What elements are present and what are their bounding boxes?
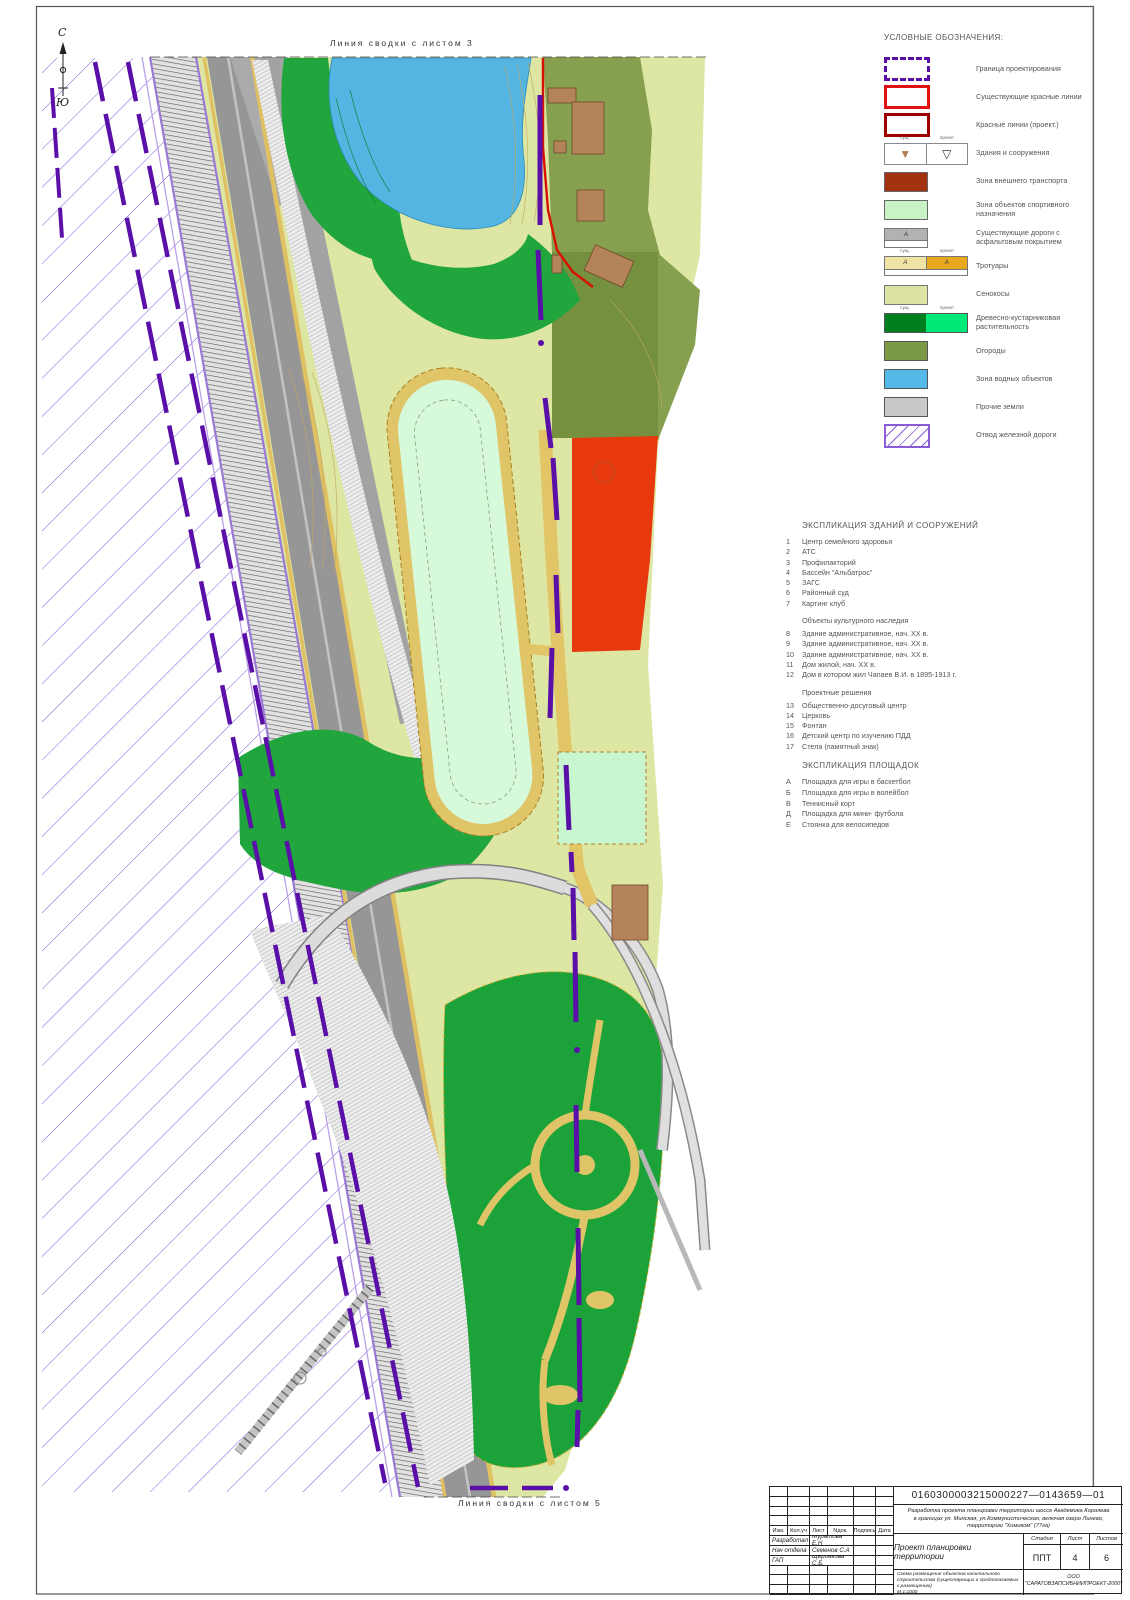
other-symbol [884, 397, 928, 417]
boundary-swatch [884, 57, 976, 81]
title-block: Изм.Кол.учЛистNдок.ПодписьДатаРазработал… [769, 1486, 1122, 1594]
compass-north-label: С [58, 26, 66, 39]
item-label: Здание административное, нач. XX в. [802, 629, 928, 639]
explication-group-heading: Объекты культурного наследия [786, 616, 1068, 625]
legend-item-label: Красные линии (проект.) [976, 121, 1094, 130]
explication-areas-title: ЭКСПЛИКАЦИЯ ПЛОЩАДОК [786, 761, 1068, 770]
explication-item: 15Фонтан [786, 721, 1068, 731]
redexist-swatch [884, 85, 976, 109]
swatch-column-headers: сущ.проект [884, 248, 968, 253]
explication-item: 13Общественно-досуговый центр [786, 701, 1068, 711]
roads-swatch: А [884, 228, 976, 248]
explication-item: 17Стела (памятный знак) [786, 742, 1068, 752]
trees-swatch: сущ.проект [884, 313, 976, 333]
stamp-cell [788, 1487, 810, 1497]
item-label: Дом жилой, нач. XX в. [802, 660, 876, 670]
stamp-cell: Лист [810, 1526, 828, 1536]
area-letter: Е [786, 820, 802, 831]
item-label: Здание административное, нач. XX в. [802, 639, 928, 649]
explication: ЭКСПЛИКАЦИЯ ЗДАНИЙ И СООРУЖЕНИЙ 1Центр с… [786, 521, 1068, 831]
stamp-cell [810, 1497, 828, 1507]
scale-note: М 1:1000 [897, 1590, 917, 1595]
item-label: Здание административное, нач. XX в. [802, 650, 928, 660]
rail-symbol [884, 424, 930, 448]
sport-playground-a [558, 752, 646, 844]
legend-item-boundary: Граница проектирования [884, 55, 1094, 83]
transport-swatch [884, 172, 976, 192]
stamp-cell [854, 1585, 876, 1595]
roads-symbol: А [884, 228, 928, 248]
area-item: АПлощадка для игры в баскетбол [786, 777, 1068, 788]
sheets-total: 6 [1090, 1545, 1123, 1570]
item-number: 17 [786, 742, 802, 752]
legend-item-trees: сущ.проектДревесно-кустарниковая растите… [884, 309, 1094, 337]
explication-item: 14Церковь [786, 711, 1068, 721]
stamp-cell [876, 1507, 894, 1517]
item-label: Церковь [802, 711, 830, 721]
explication-buildings-list: 1Центр семейного здоровья2АТС3Профилакто… [786, 537, 1068, 752]
swatch-column-headers: сущ.проект [884, 305, 968, 310]
gardens-symbol [884, 341, 928, 361]
item-number: 16 [786, 731, 802, 741]
stamp-cell [876, 1566, 894, 1576]
legend-item-label: Прочие земли [976, 403, 1094, 412]
legend-item-redexist: Существующие красные линии [884, 83, 1094, 111]
water-swatch [884, 369, 976, 389]
area-label: Площадка для мини- футбола [802, 809, 903, 820]
project-title: Проект планировки территории [894, 1534, 1024, 1569]
stamp-cell [876, 1487, 894, 1497]
area-item: БПлощадка для игры в волейбол [786, 788, 1068, 799]
area-letter: А [786, 777, 802, 788]
item-label: Районный суд [802, 588, 849, 598]
item-label: Общественно-досуговый центр [802, 701, 907, 711]
item-number: 14 [786, 711, 802, 721]
item-number: 13 [786, 701, 802, 711]
stamp-cell [828, 1497, 854, 1507]
stamp-cell [788, 1507, 810, 1517]
swatch-column-headers: сущ.проект [884, 135, 968, 140]
match-line-top-label: Линия сводки с листом 3 [330, 38, 474, 48]
area-item: ДПлощадка для мини- футбола [786, 809, 1068, 820]
stage-value: ППТ [1024, 1545, 1061, 1570]
signature-cell: Разработал [770, 1536, 810, 1546]
legend-item-label: Огороды [976, 347, 1094, 356]
water-symbol [884, 369, 928, 389]
company-line-2: "САРАТОВЗАПСИБНИИПРОЕКТ-2000" [1025, 1581, 1122, 1587]
explication-item: 9Здание административное, нач. XX в. [786, 639, 1068, 649]
explication-item: 5ЗАГС [786, 578, 1068, 588]
title-block-main: 0160300003215000227—0143659—01 Разработк… [894, 1487, 1123, 1593]
legend-item-label: Тротуары [976, 262, 1094, 271]
walk-symbol: АА [884, 256, 968, 276]
sport-symbol [884, 200, 928, 220]
legend-list: Граница проектированияСуществующие красн… [884, 55, 1094, 450]
area-label: Стоянка для велосипедов [802, 820, 889, 831]
stamp-cell [770, 1516, 788, 1526]
stamp-cell [788, 1575, 810, 1585]
company-line-1: ООО [1067, 1574, 1080, 1580]
gardens-swatch [884, 341, 976, 361]
stamp-cell [854, 1516, 876, 1526]
stamp-cell [810, 1507, 828, 1517]
legend-item-label: Существующие дороги с асфальтовым покрыт… [976, 229, 1094, 247]
redexist-symbol [884, 85, 930, 109]
explication-areas-list: АПлощадка для игры в баскетболБПлощадка … [786, 777, 1068, 831]
stamp-cell [770, 1566, 788, 1576]
legend-item-walk: сущ.проектААТротуары [884, 252, 1094, 280]
legend-item-sport: Зона объектов спортивного назначения [884, 196, 1094, 224]
explication-item: 16Детский центр по изучению ПДД [786, 731, 1068, 741]
item-label: Фонтан [802, 721, 827, 731]
stamp-cell [770, 1497, 788, 1507]
item-label: ЗАГС [802, 578, 820, 588]
stamp-cell [876, 1575, 894, 1585]
explication-item: 10Здание административное, нач. XX в. [786, 650, 1068, 660]
explication-item: 11Дом жилой, нач. XX в. [786, 660, 1068, 670]
legend-item-label: Существующие красные линии [976, 93, 1094, 102]
legend-item-label: Зона внешнего транспорта [976, 177, 1094, 186]
stamp-cell: Дата [876, 1526, 894, 1536]
bld-swatch: сущ.проект▼▽ [884, 143, 976, 165]
stamp-cell [828, 1516, 854, 1526]
signature-cell: Семенов С.А [810, 1546, 854, 1556]
stamp-cell [876, 1585, 894, 1595]
description-line-2: в границах ул. Минская, ул.Коммунистичес… [914, 1516, 1104, 1522]
match-line-bottom-label: Линия сводки с листом 5 [458, 1498, 602, 1508]
area-label: Теннисный корт [802, 799, 855, 810]
area-letter: Д [786, 809, 802, 820]
trees-symbol [884, 313, 968, 333]
legend-item-label: Древесно-кустарниковая растительность [976, 314, 1094, 332]
item-number: 15 [786, 721, 802, 731]
legend-item-label: Здания и сооружения [976, 149, 1094, 158]
stamp-cell [828, 1585, 854, 1595]
compass-south-label: Ю [56, 96, 69, 109]
signature-cell: Щербакова С.Б. [810, 1556, 854, 1566]
item-label: Детский центр по изучению ПДД [802, 731, 911, 741]
scheme-note-text: Схема размещения объектов капитального с… [897, 1572, 1018, 1589]
stamp-cell: Изм. [770, 1526, 788, 1536]
legend-item-transport: Зона внешнего транспорта [884, 168, 1094, 196]
item-label: Профилакторий [802, 558, 856, 568]
item-label: Стела (памятный знак) [802, 742, 879, 752]
title-block-signatures: Изм.Кол.учЛистNдок.ПодписьДатаРазработал… [770, 1487, 894, 1593]
item-number: 7 [786, 599, 802, 609]
stamp-cell [854, 1566, 876, 1576]
item-number: 4 [786, 568, 802, 578]
bld-symbol: ▼▽ [884, 143, 968, 165]
document-number: 0160300003215000227—0143659—01 [894, 1487, 1123, 1505]
stamp-cell [788, 1497, 810, 1507]
plan-sheet: Линия сводки с листом 3 Линия сводки с л… [0, 0, 1130, 1600]
sheets-label: Листов [1090, 1534, 1123, 1544]
item-number: 10 [786, 650, 802, 660]
stamp-cell [810, 1516, 828, 1526]
area-label: Площадка для игры в волейбол [802, 788, 909, 799]
area-letter: В [786, 799, 802, 810]
stamp-cell [828, 1566, 854, 1576]
item-number: 2 [786, 547, 802, 557]
stamp-cell: Подпись [854, 1526, 876, 1536]
description-line-1: Разработка проекта планировки территории… [908, 1508, 1110, 1514]
project-description: Разработка проекта планировки территории… [894, 1505, 1123, 1534]
stamp-cell [828, 1507, 854, 1517]
legend-item-label: Граница проектирования [976, 65, 1094, 74]
rail-swatch [884, 424, 976, 448]
explication-buildings-title: ЭКСПЛИКАЦИЯ ЗДАНИЙ И СООРУЖЕНИЙ [786, 521, 1068, 530]
item-number: 3 [786, 558, 802, 568]
item-label: Центр семейного здоровья [802, 537, 892, 547]
hay-symbol [884, 285, 928, 305]
stamp-cell [876, 1516, 894, 1526]
stamp-cell [854, 1556, 876, 1566]
explication-item: 1Центр семейного здоровья [786, 537, 1068, 547]
sheet-label: Лист [1061, 1534, 1090, 1544]
legend: УСЛОВНЫЕ ОБОЗНАЧЕНИЯ: Граница проектиров… [884, 33, 1094, 450]
legend-item-other: Прочие земли [884, 393, 1094, 421]
stamp-cell [854, 1546, 876, 1556]
stamp-cell [810, 1566, 828, 1576]
item-number: 12 [786, 670, 802, 680]
signature-cell: Нач отдела [770, 1546, 810, 1556]
legend-item-rail: Отвод железной дороги [884, 421, 1094, 449]
item-label: Картинг клуб [802, 599, 845, 609]
item-number: 8 [786, 629, 802, 639]
signature-cell: ГАП [770, 1556, 810, 1566]
item-number: 9 [786, 639, 802, 649]
stamp-cell [828, 1575, 854, 1585]
stamp-cell [876, 1546, 894, 1556]
stamp-cell [770, 1585, 788, 1595]
stamp-cell [788, 1585, 810, 1595]
stamp-cell [770, 1487, 788, 1497]
explication-item: 4Бассейн "Альбатрос" [786, 568, 1068, 578]
stamp-cell [854, 1507, 876, 1517]
stamp-cell: Кол.уч [788, 1526, 810, 1536]
boundary-symbol [884, 57, 930, 81]
stage-label: Стадия [1024, 1534, 1061, 1544]
stamp-cell [810, 1487, 828, 1497]
legend-item-gardens: Огороды [884, 337, 1094, 365]
item-label: Бассейн "Альбатрос" [802, 568, 872, 578]
explication-item: 6Районный суд [786, 588, 1068, 598]
legend-item-label: Сенокосы [976, 290, 1094, 299]
area-item: ЕСтоянка для велосипедов [786, 820, 1068, 831]
explication-item: 3Профилакторий [786, 558, 1068, 568]
sheet-number: 4 [1061, 1545, 1090, 1570]
stamp-cell [810, 1585, 828, 1595]
item-number: 11 [786, 660, 802, 670]
legend-item-bld: сущ.проект▼▽Здания и сооружения [884, 140, 1094, 168]
explication-item: 12Дом в котором жил Чапаев В.И. в 1895-1… [786, 670, 1068, 680]
hay-swatch [884, 285, 976, 305]
area-item: ВТеннисный корт [786, 799, 1068, 810]
stamp-cell [876, 1556, 894, 1566]
stamp-cell [788, 1566, 810, 1576]
stage-grid: Стадия Лист Листов ППТ 4 6 [1024, 1534, 1123, 1569]
signature-cell: Муратова Е.Н [810, 1536, 854, 1546]
stamp-cell [770, 1575, 788, 1585]
stamp-cell: Nдок. [828, 1526, 854, 1536]
legend-item-water: Зона водных объектов [884, 365, 1094, 393]
stamp-cell [788, 1516, 810, 1526]
description-line-3: территорию "Химиком" (77га) [967, 1523, 1050, 1529]
legend-title: УСЛОВНЫЕ ОБОЗНАЧЕНИЯ: [884, 33, 1094, 42]
stamp-cell [810, 1575, 828, 1585]
explication-group-heading: Проектные решения [786, 688, 1068, 697]
item-number: 1 [786, 537, 802, 547]
area-letter: Б [786, 788, 802, 799]
area-label: Площадка для игры в баскетбол [802, 777, 911, 788]
stamp-cell [876, 1497, 894, 1507]
stamp-cell [876, 1536, 894, 1546]
item-label: АТС [802, 547, 816, 557]
scheme-note: Схема размещения объектов капитального с… [894, 1570, 1024, 1595]
stamp-cell [854, 1575, 876, 1585]
walk-swatch: сущ.проектАА [884, 256, 976, 276]
item-number: 5 [786, 578, 802, 588]
sport-swatch [884, 200, 976, 220]
legend-item-label: Зона водных объектов [976, 375, 1094, 384]
stamp-cell [770, 1507, 788, 1517]
legend-item-label: Отвод железной дороги [976, 431, 1094, 440]
stamp-cell [854, 1497, 876, 1507]
stamp-cell [828, 1487, 854, 1497]
item-number: 6 [786, 588, 802, 598]
explication-item: 7Картинг клуб [786, 599, 1068, 609]
item-label: Дом в котором жил Чапаев В.И. в 1895-191… [802, 670, 956, 680]
stamp-cell [854, 1536, 876, 1546]
legend-item-label: Зона объектов спортивного назначения [976, 201, 1094, 219]
transport-symbol [884, 172, 928, 192]
explication-item: 8Здание административное, нач. XX в. [786, 629, 1068, 639]
company-name: ООО "САРАТОВЗАПСИБНИИПРОЕКТ-2000" [1024, 1570, 1123, 1595]
stamp-cell [854, 1487, 876, 1497]
explication-item: 2АТС [786, 547, 1068, 557]
other-swatch [884, 397, 976, 417]
